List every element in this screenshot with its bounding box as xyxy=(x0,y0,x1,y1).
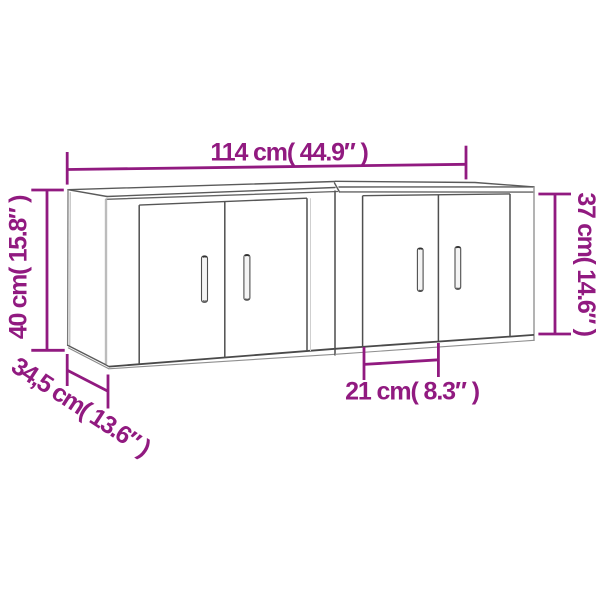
svg-text:114 cm( 44.9″ ): 114 cm( 44.9″ ) xyxy=(210,139,368,167)
svg-text:37 cm( 14.6″ ): 37 cm( 14.6″ ) xyxy=(572,192,600,336)
svg-text:40 cm( 15.8″ ): 40 cm( 15.8″ ) xyxy=(5,195,33,339)
svg-text:21 cm( 8.3″ ): 21 cm( 8.3″ ) xyxy=(345,378,480,406)
